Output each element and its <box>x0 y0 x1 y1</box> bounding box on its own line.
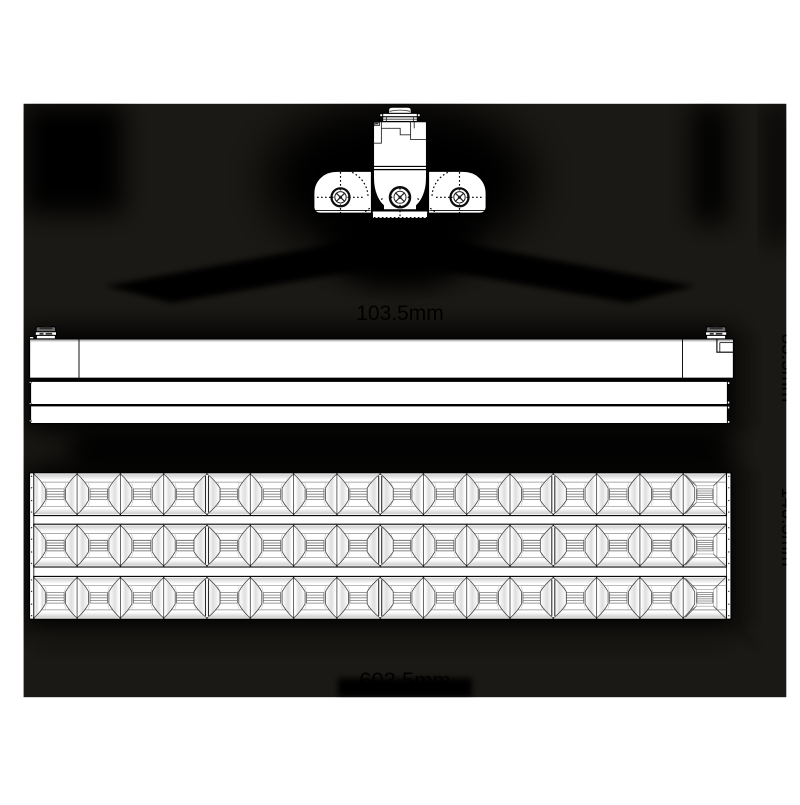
svg-text:103.5mm: 103.5mm <box>356 302 444 325</box>
svg-text:603.5mm: 603.5mm <box>359 668 451 693</box>
